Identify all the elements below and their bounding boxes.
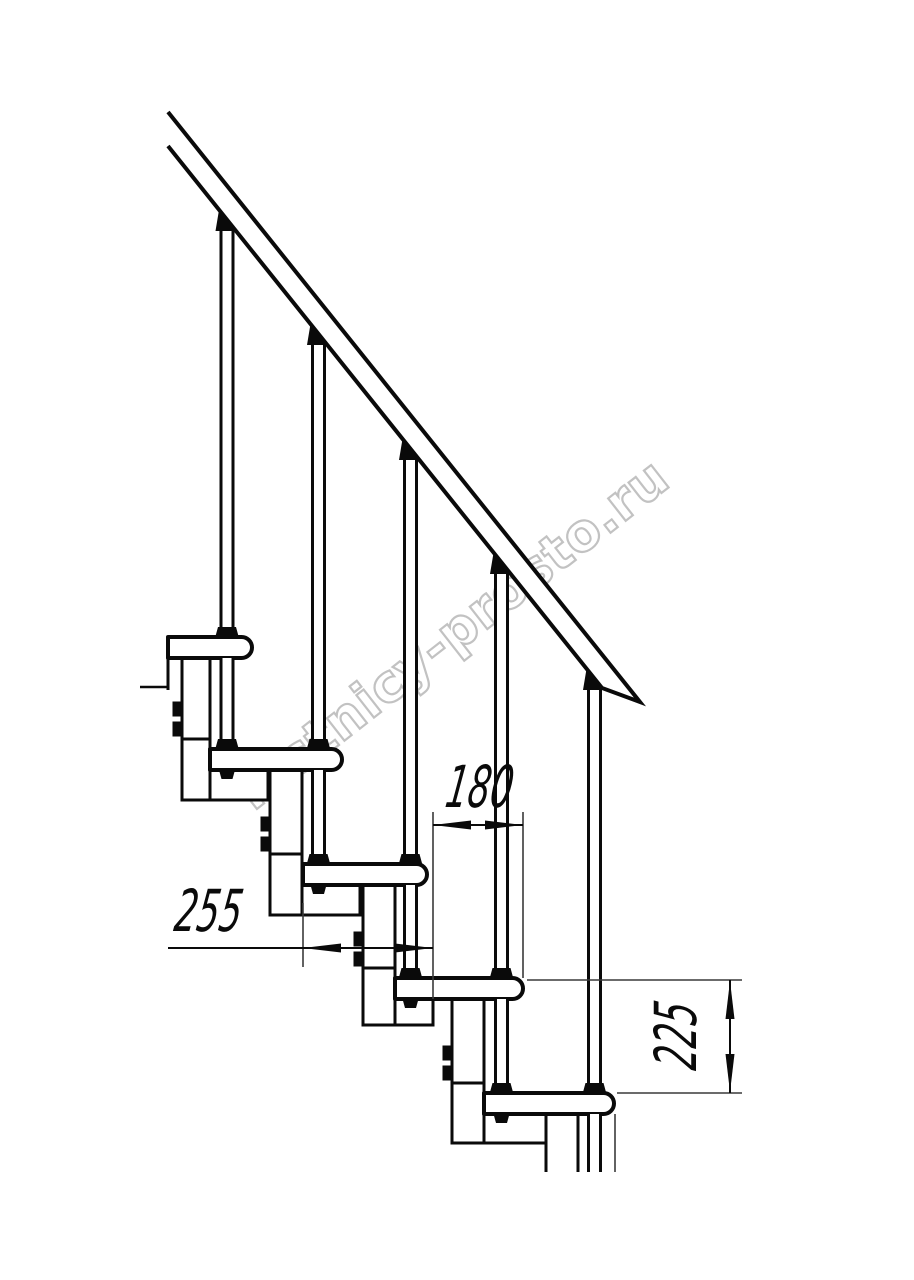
mount-tab [262,838,270,850]
arrowhead [303,944,341,953]
baluster-4 [490,572,514,1123]
mount-tab [444,1067,452,1079]
through-nut [311,885,327,894]
column-bracket [302,885,360,915]
tread-flange [490,1083,514,1094]
tread-flange [307,739,331,750]
tread-4 [395,978,523,999]
tread-flange [307,854,331,865]
mount-tab [355,953,363,965]
arrowhead [726,981,735,1019]
column-bracket [484,1114,546,1143]
baluster-1 [215,228,239,779]
baluster-3 [399,459,423,1008]
support-column-5 [546,1114,578,1172]
tread-flange [215,627,239,638]
tread-5 [484,1093,614,1114]
mount-tab [174,703,182,715]
staircase-drawing: lestnicy-prosto.ru [0,0,914,1280]
tread-1 [168,637,252,658]
cut-edge-detail [140,658,168,690]
technical-drawing-page: lestnicy-prosto.ru [0,0,914,1280]
tread-flange [399,968,423,979]
tread-2 [210,749,342,770]
support-column-3 [355,885,433,1025]
tread-flange [583,1083,607,1094]
mount-tab [444,1047,452,1059]
through-nut [219,770,235,779]
dimension-180-label: 180 [442,754,518,821]
dimension-255-label: 255 [171,878,247,945]
column-bracket [210,770,268,800]
arrowhead [726,1054,735,1092]
tread-flange [215,739,239,750]
through-nut [403,999,419,1008]
arrowhead [433,821,471,830]
balusters [215,228,607,1172]
dimension-180: 180 [433,754,523,999]
dimension-225-label: 225 [643,997,710,1073]
mount-tab [355,933,363,945]
mount-tab [262,818,270,830]
mount-tab [174,723,182,735]
tread-flange [490,968,514,979]
tread-3 [303,864,427,885]
baluster-2 [307,345,331,894]
tread-flange [399,854,423,865]
through-nut [494,1114,510,1123]
